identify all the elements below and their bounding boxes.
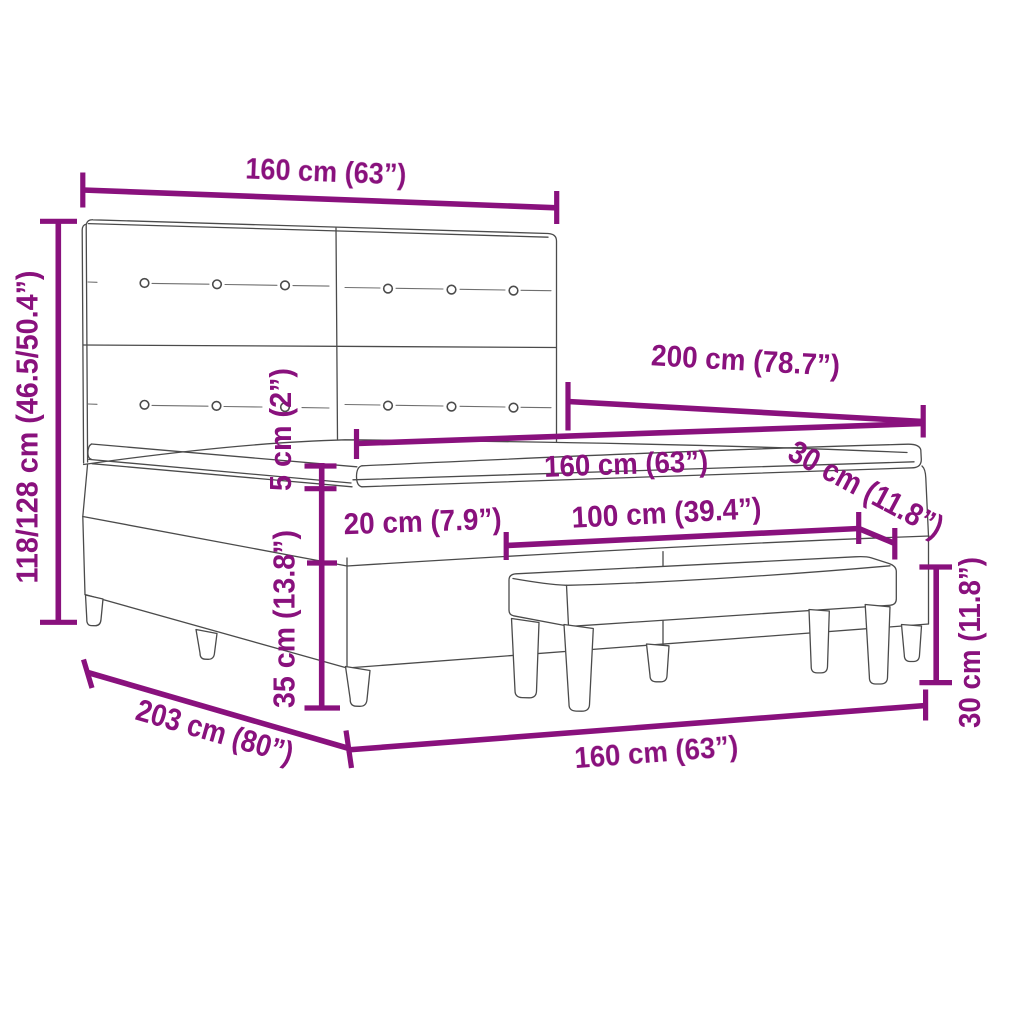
svg-text:30 cm (11.8”): 30 cm (11.8”) — [952, 557, 987, 728]
svg-text:160 cm (63”): 160 cm (63”) — [245, 153, 407, 192]
svg-text:118/128 cm (46.5/50.4”): 118/128 cm (46.5/50.4”) — [10, 271, 45, 584]
svg-text:160 cm (63”): 160 cm (63”) — [544, 445, 709, 484]
svg-text:20 cm (7.9”): 20 cm (7.9”) — [343, 503, 502, 541]
svg-text:35 cm (13.8”): 35 cm (13.8”) — [267, 530, 302, 708]
svg-text:5 cm (2”): 5 cm (2”) — [263, 368, 298, 491]
